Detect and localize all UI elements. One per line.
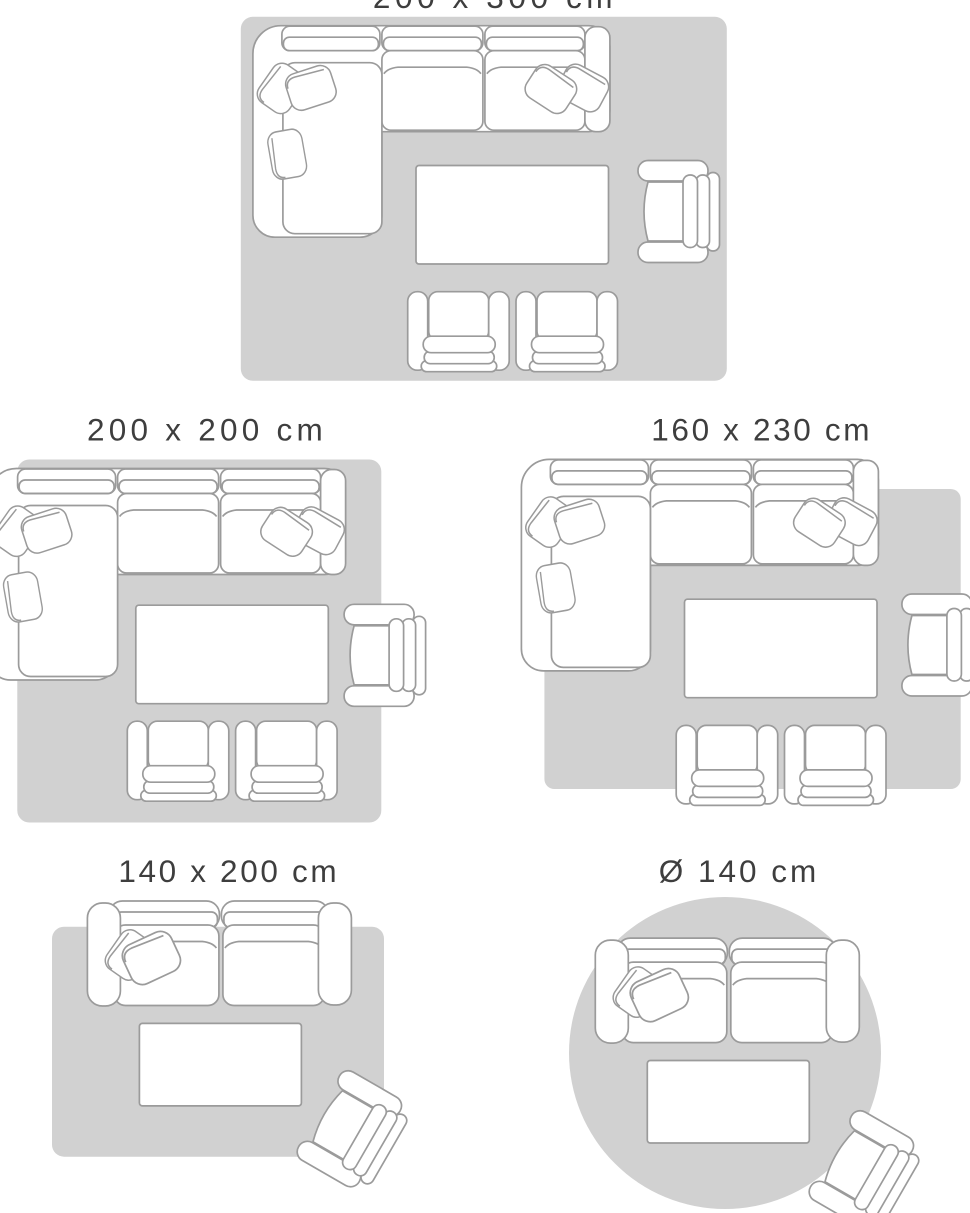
svg-text:Ø 140 cm: Ø 140 cm [659,853,820,889]
svg-text:160 x 230 cm: 160 x 230 cm [651,412,872,448]
svg-text:140 x 200 cm: 140 x 200 cm [118,853,339,889]
svg-text:200 x 200 cm: 200 x 200 cm [87,412,327,448]
svg-text:200 x 300 cm: 200 x 300 cm [373,0,617,15]
